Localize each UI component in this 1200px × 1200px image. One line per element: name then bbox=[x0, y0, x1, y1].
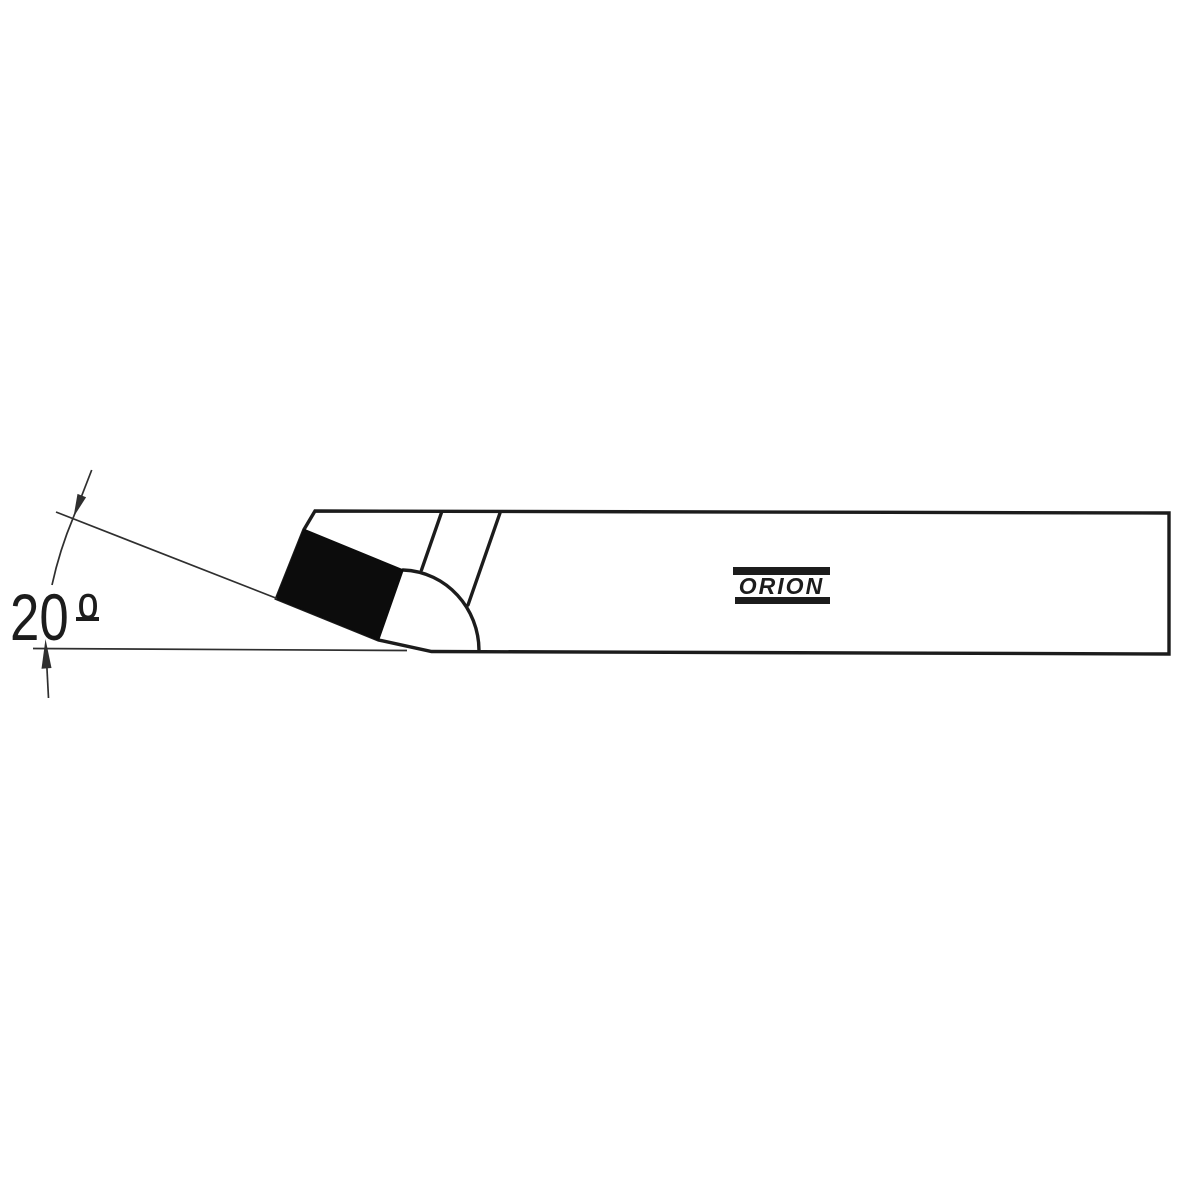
technical-drawing-canvas: 20º ORION bbox=[0, 0, 1200, 1200]
angle-dimension-arc bbox=[52, 517, 74, 585]
angle-value: 20 bbox=[10, 580, 69, 654]
tool-shank-outline bbox=[277, 511, 1170, 654]
brand-logo-bottom-bar bbox=[735, 597, 830, 605]
brand-logo: ORION bbox=[733, 567, 830, 604]
brand-logo-text: ORION bbox=[733, 575, 830, 597]
degree-symbol-underline bbox=[76, 617, 99, 621]
lathe-tool-drawing bbox=[0, 0, 1200, 1200]
arc-arrowhead-icon bbox=[74, 494, 87, 517]
